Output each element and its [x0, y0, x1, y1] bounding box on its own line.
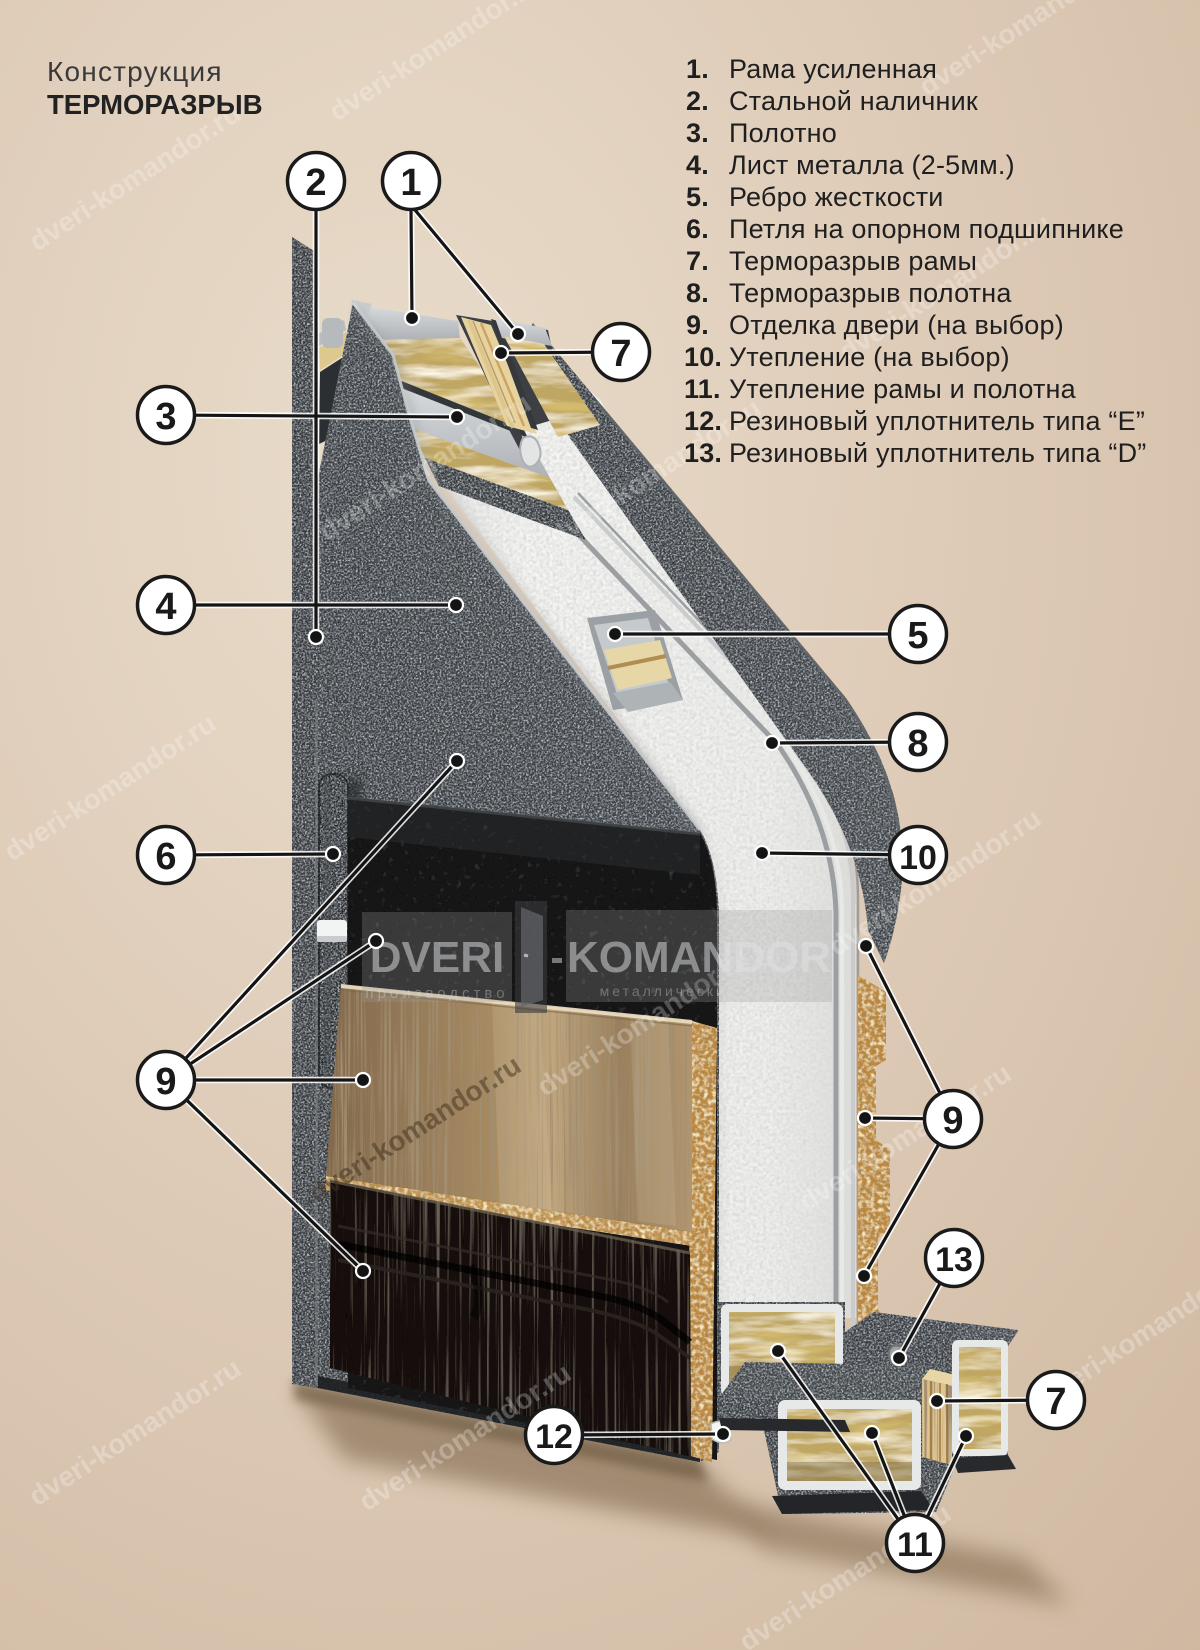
svg-text:10: 10: [899, 839, 937, 877]
svg-text:10.: 10.: [684, 342, 722, 372]
svg-text:1: 1: [400, 162, 421, 204]
svg-text:12: 12: [535, 1418, 573, 1456]
svg-text:Резиновый уплотнитель типа “Е”: Резиновый уплотнитель типа “Е”: [729, 406, 1145, 436]
svg-text:8: 8: [907, 723, 928, 765]
svg-text:Стальной наличник: Стальной наличник: [729, 86, 978, 116]
svg-text:1.: 1.: [686, 54, 709, 84]
svg-text:металлические двери: металлические двери: [600, 983, 799, 999]
svg-text:7.: 7.: [686, 246, 709, 276]
svg-text:Ребро жесткости: Ребро жесткости: [729, 182, 944, 212]
svg-text:ТЕРМОРАЗРЫВ: ТЕРМОРАЗРЫВ: [47, 89, 263, 120]
svg-text:2: 2: [305, 162, 326, 204]
svg-text:9.: 9.: [686, 310, 709, 340]
svg-text:Терморазрыв полотна: Терморазрыв полотна: [729, 278, 1012, 308]
svg-text:12.: 12.: [684, 406, 722, 436]
svg-text:Терморазрыв рамы: Терморазрыв рамы: [729, 246, 977, 276]
svg-text:9: 9: [155, 1061, 176, 1103]
svg-text:Полотно: Полотно: [729, 118, 837, 148]
svg-text:Отделка двери (на выбор): Отделка двери (на выбор): [729, 310, 1064, 340]
svg-text:Утепление рамы и полотна: Утепление рамы и полотна: [729, 374, 1077, 404]
svg-text:11: 11: [897, 1526, 933, 1564]
svg-text:13: 13: [935, 1241, 973, 1279]
svg-text:KOMANDOR: KOMANDOR: [567, 933, 831, 982]
svg-text:7: 7: [610, 333, 631, 375]
svg-text:3.: 3.: [686, 118, 709, 148]
svg-text:Рама усиленная: Рама усиленная: [729, 54, 937, 84]
svg-text:Конструкция: Конструкция: [47, 56, 223, 87]
svg-text:5: 5: [907, 615, 928, 657]
svg-text:8.: 8.: [686, 278, 709, 308]
svg-text:2.: 2.: [686, 86, 709, 116]
svg-text:Утепление (на выбор): Утепление (на выбор): [729, 342, 1010, 372]
svg-text:DVERI: DVERI: [370, 933, 504, 982]
svg-text:6.: 6.: [686, 214, 709, 244]
svg-text:5.: 5.: [686, 182, 709, 212]
svg-text:9: 9: [942, 1100, 963, 1142]
svg-text:7: 7: [1045, 1381, 1066, 1423]
svg-text:3: 3: [155, 396, 176, 438]
svg-text:производство: производство: [365, 985, 508, 1002]
svg-text:6: 6: [155, 836, 176, 878]
svg-text:Петля на опорном подшипнике: Петля на опорном подшипнике: [729, 214, 1124, 244]
svg-text:Резиновый уплотнитель типа “D”: Резиновый уплотнитель типа “D”: [729, 438, 1147, 468]
svg-text:13.: 13.: [684, 438, 722, 468]
svg-text:Лист металла (2-5мм.): Лист металла (2-5мм.): [729, 150, 1015, 180]
svg-text:4: 4: [155, 586, 176, 628]
svg-text:11.: 11.: [684, 374, 721, 404]
svg-text:4.: 4.: [686, 150, 709, 180]
